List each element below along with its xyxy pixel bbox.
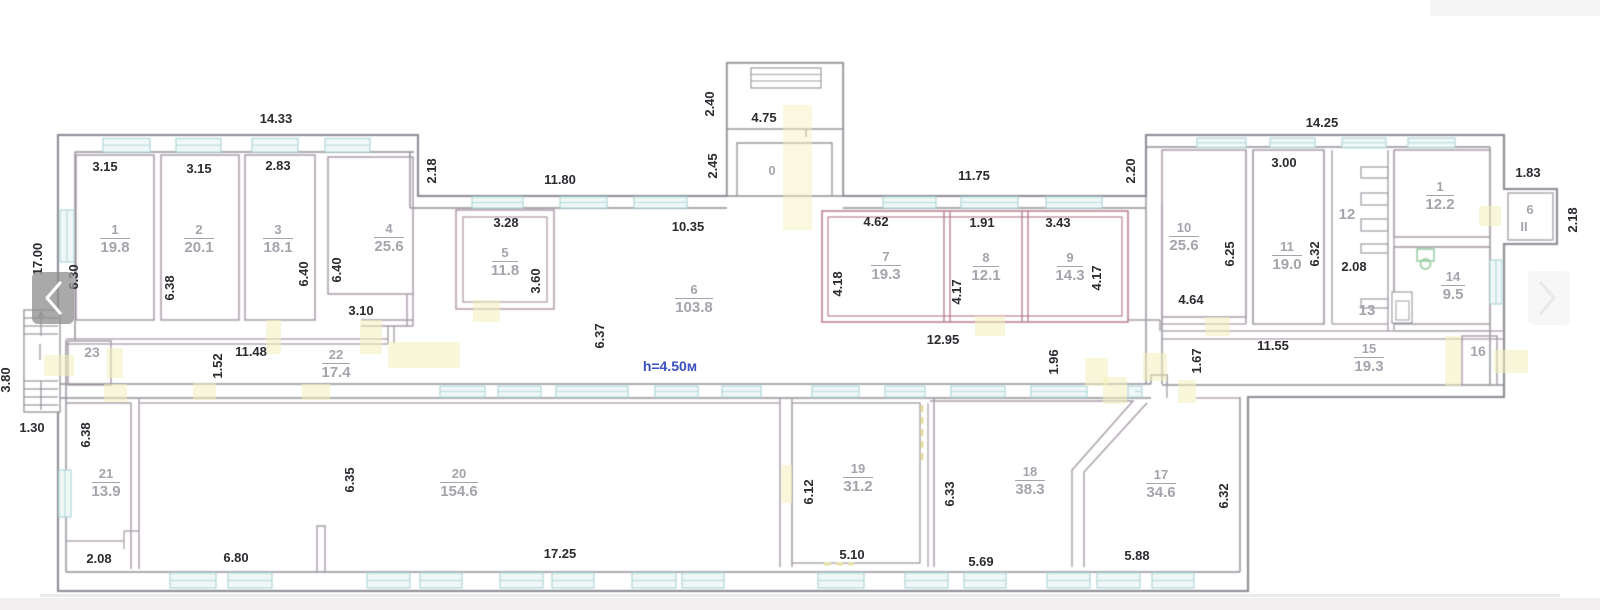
svg-text:8: 8	[982, 250, 989, 265]
svg-text:4: 4	[385, 221, 393, 236]
svg-text:17.25: 17.25	[544, 546, 577, 561]
svg-text:14.25: 14.25	[1306, 115, 1339, 130]
svg-text:21: 21	[99, 466, 113, 481]
svg-text:2.08: 2.08	[86, 551, 111, 566]
svg-text:17: 17	[1154, 467, 1168, 482]
svg-text:6.35: 6.35	[342, 467, 357, 492]
svg-text:5: 5	[501, 245, 508, 260]
svg-text:11: 11	[1280, 239, 1294, 254]
svg-text:2: 2	[195, 222, 202, 237]
svg-text:19.3: 19.3	[871, 266, 900, 283]
svg-text:34.6: 34.6	[1146, 484, 1175, 501]
svg-text:1.30: 1.30	[19, 420, 44, 435]
svg-text:38.3: 38.3	[1015, 481, 1044, 498]
svg-text:3.15: 3.15	[186, 161, 211, 176]
svg-text:6.25: 6.25	[1222, 241, 1237, 266]
svg-text:22: 22	[329, 347, 343, 362]
svg-text:11.8: 11.8	[491, 262, 519, 279]
svg-text:11.80: 11.80	[544, 172, 576, 187]
svg-text:5.88: 5.88	[1124, 548, 1149, 563]
svg-text:2.20: 2.20	[1123, 158, 1138, 183]
svg-text:12.95: 12.95	[927, 332, 960, 347]
svg-text:2.83: 2.83	[265, 158, 290, 173]
svg-text:25.6: 25.6	[1169, 237, 1198, 254]
svg-text:7: 7	[882, 249, 889, 264]
svg-text:18: 18	[1023, 464, 1037, 479]
svg-text:1.83: 1.83	[1515, 165, 1540, 180]
svg-text:6.37: 6.37	[592, 323, 607, 348]
svg-text:1.52: 1.52	[210, 353, 225, 378]
svg-text:6.32: 6.32	[1307, 241, 1322, 266]
svg-text:3.15: 3.15	[92, 159, 117, 174]
svg-text:11.48: 11.48	[235, 344, 267, 359]
svg-text:4.64: 4.64	[1178, 292, 1204, 307]
svg-text:6.38: 6.38	[162, 275, 177, 300]
svg-text:3.80: 3.80	[0, 367, 13, 392]
svg-text:12: 12	[1339, 206, 1356, 223]
svg-text:9.5: 9.5	[1443, 286, 1464, 303]
svg-text:19.3: 19.3	[1354, 358, 1383, 375]
svg-text:II: II	[1520, 219, 1527, 234]
svg-text:3.60: 3.60	[528, 268, 543, 293]
svg-text:17.4: 17.4	[321, 364, 351, 381]
svg-text:154.6: 154.6	[440, 483, 478, 500]
svg-text:20.1: 20.1	[184, 239, 213, 256]
svg-text:4.17: 4.17	[949, 279, 964, 304]
svg-text:6.32: 6.32	[1216, 483, 1231, 508]
svg-text:9: 9	[1066, 250, 1073, 265]
svg-text:1: 1	[1436, 179, 1443, 194]
svg-text:10: 10	[1177, 220, 1191, 235]
svg-text:19: 19	[851, 461, 865, 476]
svg-text:11.75: 11.75	[958, 168, 990, 183]
svg-text:25.6: 25.6	[374, 238, 403, 255]
svg-text:14.33: 14.33	[260, 111, 293, 126]
svg-text:14: 14	[1446, 269, 1461, 284]
svg-text:4.62: 4.62	[863, 214, 888, 229]
svg-text:103.8: 103.8	[675, 299, 713, 316]
svg-text:6: 6	[1526, 202, 1533, 217]
svg-text:19.0: 19.0	[1272, 256, 1301, 273]
svg-text:4.18: 4.18	[830, 271, 845, 296]
svg-text:6.12: 6.12	[801, 479, 816, 504]
svg-text:1.91: 1.91	[969, 215, 994, 230]
svg-text:1.96: 1.96	[1046, 349, 1061, 374]
svg-text:2.45: 2.45	[705, 153, 720, 178]
svg-text:12.2: 12.2	[1425, 196, 1454, 213]
svg-text:11.55: 11.55	[1257, 338, 1289, 353]
svg-text:3.00: 3.00	[1271, 155, 1296, 170]
svg-text:0: 0	[768, 163, 775, 178]
svg-text:12.1: 12.1	[971, 267, 1000, 284]
svg-text:10.35: 10.35	[672, 219, 705, 234]
svg-text:3: 3	[274, 222, 281, 237]
svg-text:6: 6	[690, 282, 697, 297]
svg-text:1.67: 1.67	[1189, 348, 1204, 373]
svg-text:6.80: 6.80	[223, 550, 248, 565]
svg-text:31.2: 31.2	[843, 478, 872, 495]
svg-text:19.8: 19.8	[100, 239, 129, 256]
svg-text:23: 23	[84, 344, 100, 360]
svg-text:6.33: 6.33	[942, 481, 957, 506]
svg-text:3.28: 3.28	[493, 215, 518, 230]
svg-text:2.08: 2.08	[1341, 259, 1366, 274]
svg-text:4.75: 4.75	[751, 110, 776, 125]
svg-text:5.10: 5.10	[839, 547, 864, 562]
svg-text:1: 1	[111, 222, 118, 237]
svg-text:3.10: 3.10	[348, 303, 373, 318]
svg-text:5.69: 5.69	[968, 554, 993, 569]
svg-text:3.43: 3.43	[1045, 215, 1070, 230]
svg-text:20: 20	[452, 466, 466, 481]
svg-text:16: 16	[1470, 343, 1486, 359]
svg-text:6.40: 6.40	[329, 257, 344, 282]
svg-text:13.9: 13.9	[91, 483, 120, 500]
svg-text:14.3: 14.3	[1055, 267, 1084, 284]
svg-text:6.40: 6.40	[296, 261, 311, 286]
svg-text:15: 15	[1362, 341, 1376, 356]
svg-text:2.40: 2.40	[702, 91, 717, 116]
svg-text:2.18: 2.18	[424, 158, 439, 183]
svg-text:h=4.50м: h=4.50м	[643, 358, 697, 374]
svg-text:2.18: 2.18	[1565, 207, 1580, 232]
svg-text:13: 13	[1359, 302, 1376, 319]
svg-text:6.38: 6.38	[78, 422, 93, 447]
svg-text:4.17: 4.17	[1089, 265, 1104, 290]
svg-text:17.00: 17.00	[30, 243, 45, 276]
svg-text:18.1: 18.1	[263, 239, 292, 256]
